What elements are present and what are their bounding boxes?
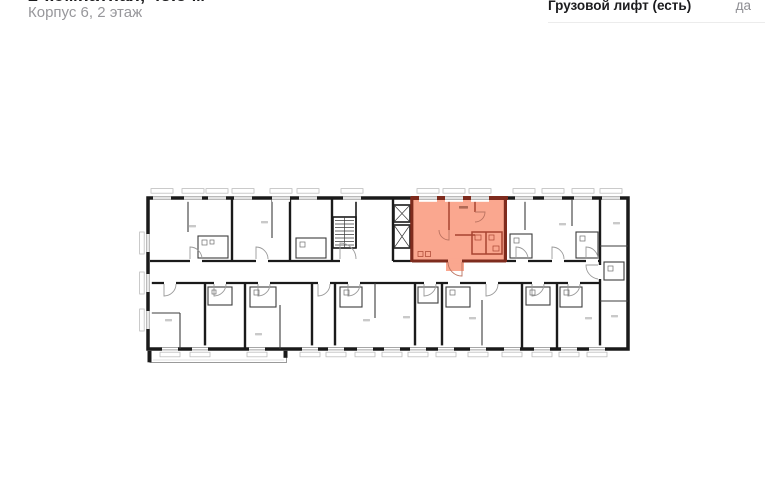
- floor-plan: [130, 180, 670, 380]
- elevator-shafts: [394, 205, 410, 248]
- elevator-icon: [394, 225, 410, 248]
- floor-plan-container: [130, 180, 670, 380]
- door-openings: [164, 243, 602, 296]
- divider: [548, 22, 765, 23]
- interior-walls: [146, 199, 628, 349]
- page-subtitle: Корпус 6, 2 этаж: [28, 4, 142, 21]
- elevator-icon: [394, 205, 410, 222]
- spec-value: да: [736, 0, 751, 13]
- corridor-walls: [150, 261, 600, 283]
- spec-row-freight-elevator: Грузовой лифт (есть) да: [548, 0, 751, 13]
- spec-label: Грузовой лифт (есть): [548, 0, 691, 13]
- windows: [140, 189, 622, 357]
